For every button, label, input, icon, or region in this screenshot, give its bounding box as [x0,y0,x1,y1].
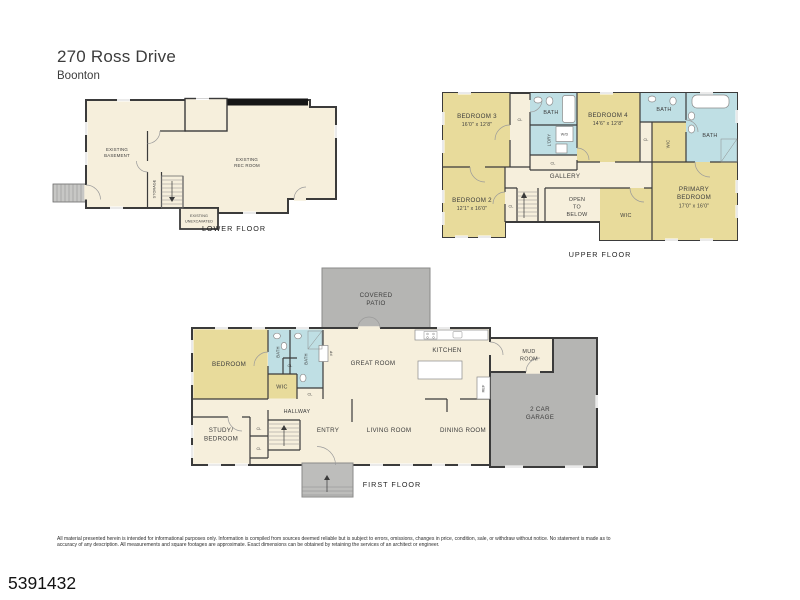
kitchen-island [418,361,462,379]
toilet-bath2 [300,374,306,382]
page-subtitle: Boonton [57,70,100,82]
room-label-bath-hall: BATH [543,110,558,116]
room-mud-room [490,338,553,372]
dim-label-bedroom4: 14'6" x 12'8" [593,121,624,127]
sink-bath1 [274,333,281,339]
room-label-basement-1: EXISTING [106,147,128,152]
room-label-unexcavated-1: EXISTING [190,214,208,218]
page-title: 270 Ross Drive [57,47,176,67]
room-label-rec-2: REC ROOM [234,163,260,168]
room-label-wic-bath: WIC [666,140,671,149]
room-label-gallery: GALLERY [550,173,581,180]
front-stoop [302,463,353,497]
room-label-basement-2: BASEMENT [104,153,130,158]
toilet-bath1 [281,342,287,349]
exterior-stairs [53,184,86,202]
label-open-2: TO [573,205,581,211]
label-cl-study1: CL [257,427,262,431]
first-floor-plan: COVERED PATIO BEDROOM BATH BATH CL WIC C… [180,262,620,505]
room-label-bath1: BATH [276,346,281,357]
mls-number: 5391432 [8,573,76,594]
room-label-wic: WIC [276,385,287,391]
lower-floor-plan: EXISTING BASEMENT EXISTING REC ROOM STOR… [40,88,370,240]
bathtub-primary [692,95,729,108]
room-label-storage: STORAGE [153,179,157,198]
room-label-garage-2: GARAGE [526,414,554,421]
room-label-rec-1: EXISTING [236,157,258,162]
floor-plan-sheet: 270 Ross Drive Boonton EXISTING BASEMENT… [0,0,800,600]
label-cl-laundry: CL [551,162,556,166]
room-label-bath-primary: BATH [702,133,717,139]
sink-bath2 [295,333,302,339]
solid-wall-bar [228,99,309,106]
sink-primary-2 [688,125,694,133]
first-floor-caption: FIRST FLOOR [363,480,421,489]
room-label-primary-2: BEDROOM [677,194,711,201]
label-open-1: OPEN [569,197,585,203]
room-label-bedroom: BEDROOM [212,361,246,368]
label-fireplace: FP [330,350,334,355]
room-label-bedroom3: BEDROOM 3 [457,113,497,120]
toilet-hall [546,97,553,105]
label-cl-bath2: CL [308,393,313,397]
laundry-sink-box [556,144,567,153]
room-label-bedroom2: BEDROOM 2 [452,197,492,204]
room-label-unexcavated-2: UNEXCAVATED [185,220,213,224]
room-label-mud-1: MUD [522,349,535,355]
room-label-study-1: STUDY/ [209,427,234,434]
upper-floor-caption: UPPER FLOOR [569,250,632,259]
room-label-great-room: GREAT ROOM [351,360,396,367]
room-primary-bedroom [652,162,737,240]
room-label-bath-small: BATH [656,107,671,113]
dim-label-bedroom2: 12'1" x 16'0" [457,206,488,212]
room-label-study-2: BEDROOM [204,436,238,443]
label-cl-bedroom2: CL [509,205,514,209]
label-open-3: BELOW [567,212,589,218]
dim-label-bedroom3: 16'0" x 12'8" [462,122,493,128]
room-label-laundry: L'DRY [547,134,552,147]
disclaimer: All material presented herein is intende… [57,536,611,548]
room-label-kitchen: KITCHEN [432,347,461,354]
bathtub-hall [563,96,576,123]
sink-primary-1 [688,112,694,120]
upper-floor-plan: BEDROOM 3 16'0" x 12'8" CL BATH L'DRY W/… [430,88,750,266]
room-bump-out [185,99,227,132]
room-bedroom-3 [443,93,510,167]
dim-label-primary: 17'0" x 16'0" [679,204,710,210]
room-label-bath2: BATH [304,353,309,364]
room-label-primary-1: PRIMARY [679,186,709,193]
room-label-entry: ENTRY [317,427,339,434]
label-cl-bedroom3: CL [518,118,523,122]
label-cl-study2: CL [257,447,262,451]
label-cl-bath1: CL [288,364,293,368]
label-refrigerator: REF [482,384,486,392]
sink-small-bath [648,96,656,102]
room-label-mud-2: ROOM [520,357,538,363]
room-bedroom-4 [577,93,640,162]
room-label-hallway: HALLWAY [284,409,311,415]
fireplace [319,346,328,362]
lower-floor-caption: LOWER FLOOR [202,224,266,233]
room-label-bedroom4: BEDROOM 4 [588,112,628,119]
toilet-small-bath [670,97,676,105]
room-label-wic-primary: WIC [620,213,631,219]
sink-hall [534,97,542,103]
room-label-patio-1: COVERED [360,292,393,299]
disclaimer-line-2: accuracy of any description. All measure… [57,542,611,548]
room-label-dining-room: DINING ROOM [440,427,486,434]
label-washer-dryer: W/D [561,133,569,137]
room-label-living-room: LIVING ROOM [367,427,412,434]
room-label-patio-2: PATIO [366,300,385,307]
label-cl-bedroom4: CL [644,138,649,142]
room-label-garage-1: 2 CAR [530,406,550,413]
